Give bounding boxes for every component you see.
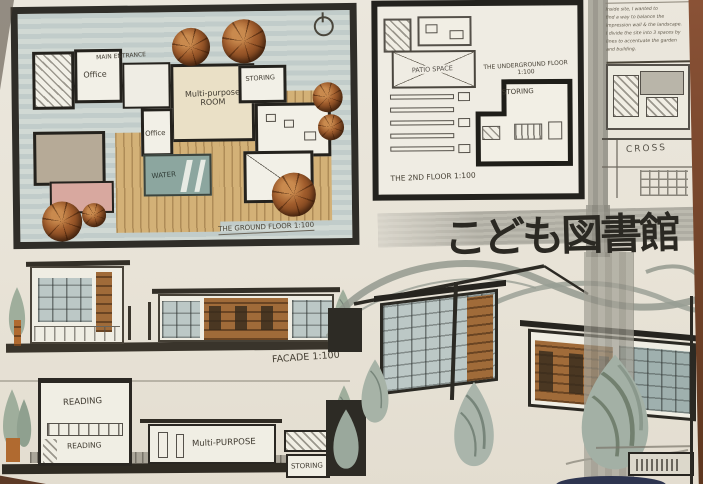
stairs (383, 18, 411, 52)
storing-room: STORING (238, 65, 286, 104)
roof-line (140, 419, 282, 423)
tree-symbol (452, 380, 496, 468)
reading-upper-label: READING (63, 396, 103, 408)
underground-storing-label: STORING (502, 87, 534, 96)
second-floor-caption: THE 2ND FLOOR 1:100 (390, 171, 475, 184)
sketch-grid (640, 170, 688, 196)
wood-panel (96, 272, 112, 332)
facade-roof-line (152, 287, 340, 294)
water-reflection (180, 160, 192, 192)
facade-right-block (158, 294, 334, 342)
tree-symbol (42, 201, 82, 241)
multi-purpose-label: Multi-purpose ROOM (177, 87, 248, 108)
wood-panel (467, 294, 493, 381)
table (458, 118, 470, 127)
patio-space: PATIO SPACE (392, 50, 476, 89)
shelf-row (390, 94, 454, 99)
sketch-block (646, 97, 678, 117)
storing-section: STORING (284, 430, 330, 480)
post (176, 434, 184, 458)
glass-wall (162, 301, 200, 338)
furniture (266, 114, 276, 122)
window-row (209, 306, 283, 330)
office-room-lower: Office (141, 108, 174, 156)
multi-purpose-section-label: Multi-PURPOSE (192, 437, 256, 449)
cross-label: CROSS (626, 143, 668, 155)
furniture (425, 24, 437, 33)
sketch-block (613, 75, 639, 117)
post (158, 432, 168, 458)
furniture (284, 120, 294, 128)
water-reflection (194, 160, 205, 192)
lower-room: STORING (286, 454, 330, 478)
facade-post (128, 306, 131, 340)
handwritten-notes: Inside site, I wanted to find a way to b… (605, 1, 690, 63)
section-sketch (606, 64, 690, 130)
facade-post (148, 302, 151, 340)
office-upper-label: Office (83, 70, 107, 80)
second-floor-plan: PATIO SPACE THE 2ND FLOOR 1:100 THE UNDE… (371, 0, 584, 201)
upper-room (284, 430, 330, 452)
board-edge-line (690, 296, 693, 484)
office-lower-label: Office (145, 129, 166, 138)
multi-purpose-section: Multi-PURPOSE (148, 424, 276, 464)
presentation-board-photo: Office MAIN ENTRANCE Multi-purpose ROOM … (0, 0, 703, 484)
table (458, 144, 470, 153)
shelf-row (390, 133, 454, 138)
storing-section-label: STORING (291, 461, 323, 470)
furniture (304, 131, 316, 140)
sketch-line (616, 140, 618, 198)
furniture (482, 126, 500, 140)
gray-room (33, 131, 106, 186)
water-pond: WATER (143, 154, 212, 197)
entrance-vestibule (122, 62, 171, 109)
furniture (548, 121, 562, 139)
sketch-block (640, 71, 684, 95)
facade-drawing: FACADE 1:100 (0, 258, 360, 374)
shelf-row (390, 120, 454, 125)
tree-symbol (360, 358, 390, 424)
water-label: WATER (151, 170, 176, 180)
tree-symbol (272, 172, 317, 217)
signature-scribble (636, 459, 680, 471)
reading-room-section: READING READING (38, 378, 132, 466)
patio-label: PATIO SPACE (410, 64, 456, 75)
reading-lower-label: READING (67, 440, 102, 450)
shelf-band (34, 326, 120, 341)
stair-room (32, 51, 75, 110)
stair-hatch (43, 439, 57, 463)
orange-planting (6, 438, 20, 462)
tree-symbol (332, 408, 360, 470)
furniture (450, 30, 464, 39)
signature-stamp (628, 452, 694, 476)
notes-text: Inside site, I wanted to find a way to b… (605, 2, 690, 55)
shelf-row (390, 146, 454, 151)
underground-caption: THE UNDERGROUND FLOOR 1:100 (477, 59, 574, 79)
table (458, 92, 470, 101)
furniture (514, 124, 542, 140)
ground-floor-plan: Office MAIN ENTRANCE Multi-purpose ROOM … (11, 3, 360, 249)
vignette-box (328, 308, 362, 352)
storing-label: STORING (245, 73, 275, 83)
facade-left-block (30, 266, 124, 344)
tree-symbol (82, 203, 106, 227)
shelf-row (390, 107, 454, 112)
upper-room (417, 16, 471, 46)
north-arrow-icon (314, 16, 334, 36)
cross-section-sketch: CROSS (602, 138, 692, 200)
tree-symbol (312, 82, 342, 112)
tree-trunk (14, 320, 21, 346)
wood-facade-grid (204, 298, 288, 340)
glass-wall (38, 278, 92, 322)
long-section-drawing: READING READING Multi-PURPOSE STORING (0, 376, 360, 480)
board-title-japanese: こども図書館 (443, 199, 679, 266)
shelf-band (47, 423, 123, 436)
